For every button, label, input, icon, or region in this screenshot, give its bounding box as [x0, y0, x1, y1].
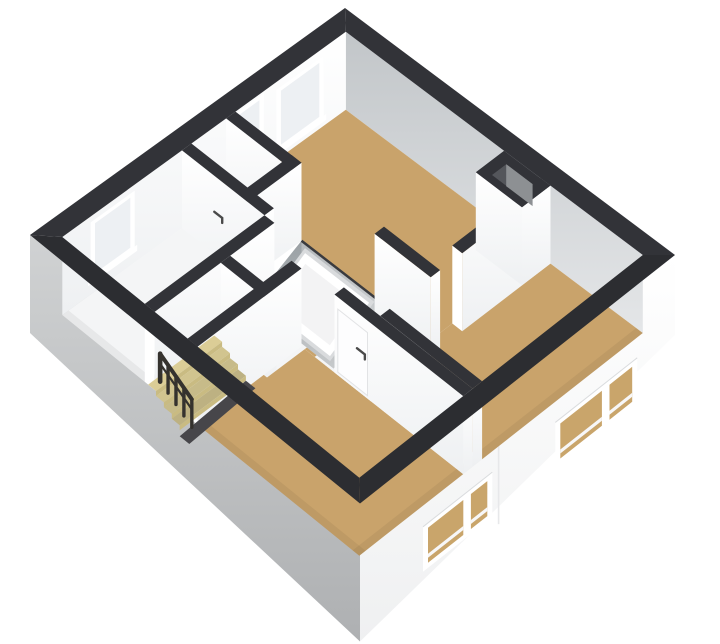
- floor-plan-canvas: [0, 0, 720, 644]
- floorplan-3d-render: [0, 0, 720, 644]
